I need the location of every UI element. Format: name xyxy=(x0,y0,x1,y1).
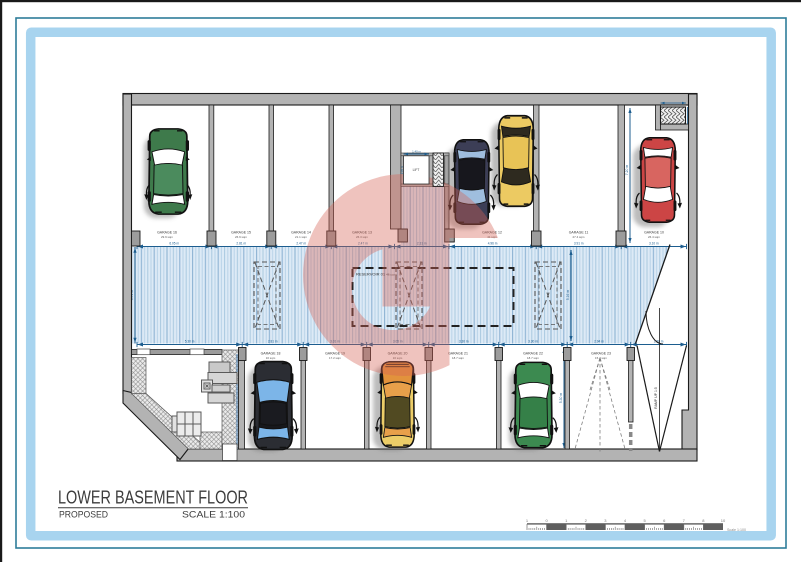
svg-text:26.4 sqm: 26.4 sqm xyxy=(648,235,660,239)
svg-text:GARAGE 21: GARAGE 21 xyxy=(448,352,468,356)
svg-text:21.1 sqm: 21.1 sqm xyxy=(295,235,307,239)
svg-text:GARAGE 18: GARAGE 18 xyxy=(261,352,281,356)
svg-text:16 sqm: 16 sqm xyxy=(266,356,276,360)
svg-text:27.4 sqm: 27.4 sqm xyxy=(573,235,585,239)
svg-text:5.30 m: 5.30 m xyxy=(559,393,563,404)
svg-text:3.10 m: 3.10 m xyxy=(649,241,659,245)
svg-text:26.9 sqm: 26.9 sqm xyxy=(235,235,247,239)
svg-text:4.96 m: 4.96 m xyxy=(488,241,498,245)
svg-text:GARAGE 22: GARAGE 22 xyxy=(523,352,543,356)
svg-text:1.40 m: 1.40 m xyxy=(412,149,421,153)
svg-text:18.7 sqm: 18.7 sqm xyxy=(452,356,464,360)
svg-text:5.16 m: 5.16 m xyxy=(566,290,570,301)
svg-text:GARAGE 16: GARAGE 16 xyxy=(157,231,177,235)
svg-text:10: 10 xyxy=(721,518,726,523)
svg-text:LIFT: LIFT xyxy=(413,168,420,172)
svg-text:2.81 m: 2.81 m xyxy=(268,339,278,343)
svg-text:7.20 m: 7.20 m xyxy=(625,165,629,176)
svg-text:6.05 m: 6.05 m xyxy=(169,241,179,245)
svg-text:2.81 m: 2.81 m xyxy=(236,241,246,245)
svg-text:PROPOSED: PROPOSED xyxy=(59,510,108,520)
svg-text:3.30 m: 3.30 m xyxy=(528,339,538,343)
svg-text:2.94 m: 2.94 m xyxy=(594,339,604,343)
svg-text:GARAGE 11: GARAGE 11 xyxy=(569,231,589,235)
svg-text:5.30 m: 5.30 m xyxy=(185,339,195,343)
svg-text:15.7 sqm: 15.7 sqm xyxy=(595,356,607,360)
svg-text:2.47 m: 2.47 m xyxy=(296,241,306,245)
svg-text:RAMP UP 1:5: RAMP UP 1:5 xyxy=(654,387,658,409)
svg-text:LOWER BASEMENT FLOOR: LOWER BASEMENT FLOOR xyxy=(58,488,248,508)
svg-text:SCALE 1:100: SCALE 1:100 xyxy=(182,510,245,520)
svg-text:GARAGE 10: GARAGE 10 xyxy=(644,231,664,235)
svg-text:18.7 sqm: 18.7 sqm xyxy=(527,356,539,360)
svg-text:3.91 m: 3.91 m xyxy=(574,241,584,245)
svg-text:GARAGE 14: GARAGE 14 xyxy=(291,231,311,235)
svg-text:17.2 sqm: 17.2 sqm xyxy=(329,356,341,360)
svg-text:3.30 m: 3.30 m xyxy=(459,339,469,343)
svg-text:GARAGE 23: GARAGE 23 xyxy=(591,352,611,356)
svg-text:GARAGE 15: GARAGE 15 xyxy=(231,231,251,235)
svg-text:29.9 sqm: 29.9 sqm xyxy=(161,235,173,239)
